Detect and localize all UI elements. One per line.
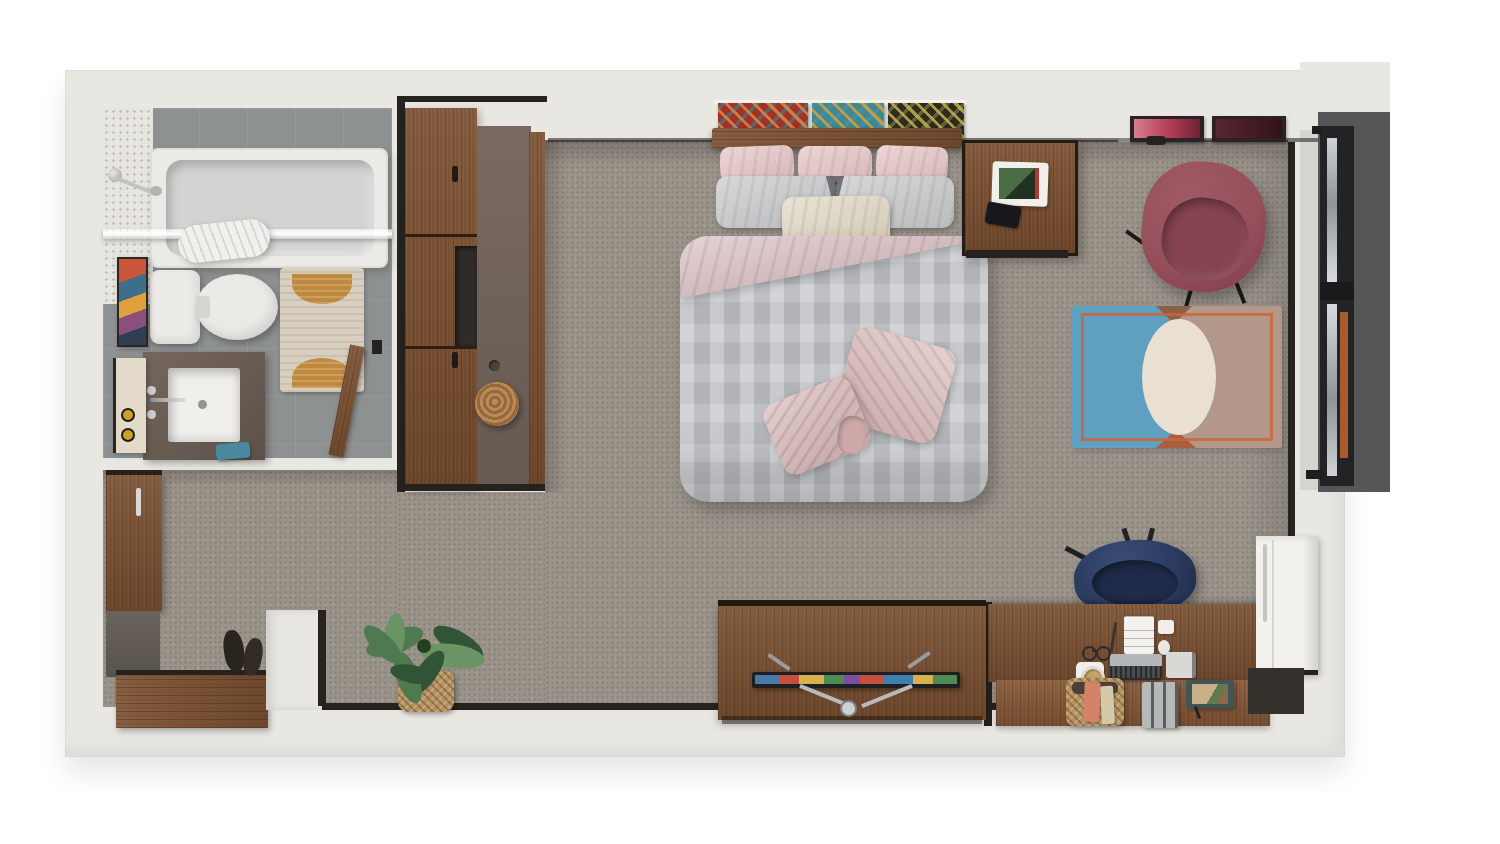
desk-keyboard-keys xyxy=(1112,666,1160,678)
sink-drain xyxy=(198,400,207,409)
tray-decor-book xyxy=(999,168,1039,199)
reading-glasses-lens-2 xyxy=(1096,646,1111,661)
file-organizer xyxy=(1142,682,1178,728)
basket-book-cream xyxy=(1100,686,1115,725)
tv-screen-colors xyxy=(755,675,957,684)
window-curtain-orange xyxy=(1340,312,1348,458)
blue-hand-towel xyxy=(215,442,250,461)
desk-corner-shadow xyxy=(1248,668,1304,714)
shelf-bottle-1 xyxy=(121,408,135,422)
partition-edge-trim xyxy=(318,610,326,706)
task-chair-seat xyxy=(1092,560,1178,606)
monstera-plant xyxy=(352,580,492,716)
wall-vent xyxy=(1146,136,1166,145)
entry-bench xyxy=(116,675,268,728)
window-glass-upper xyxy=(1327,138,1337,282)
closet-counter-panel xyxy=(477,126,531,484)
desk-tablet xyxy=(1166,652,1196,678)
wardrobe-open-shelf xyxy=(455,246,477,346)
bathroom-wall-art xyxy=(117,257,148,347)
shelf-bottle-2 xyxy=(121,428,135,442)
toilet-tank xyxy=(150,270,200,344)
cabinet-handle xyxy=(1263,544,1267,622)
window-inner-wall-sliver xyxy=(1300,130,1318,490)
wardrobe-seam-1 xyxy=(405,234,477,237)
partition-stub-wall xyxy=(266,610,322,710)
faucet-handle-top xyxy=(147,386,156,395)
window-sill-bottom xyxy=(1306,470,1324,479)
reading-glasses-bridge xyxy=(1092,650,1098,652)
toilet-seat-hinge xyxy=(196,296,210,318)
area-rug xyxy=(1072,306,1282,448)
bed-headboard xyxy=(712,128,962,148)
desk-notepad xyxy=(1124,616,1154,654)
window-mullion xyxy=(1320,282,1354,300)
closet-top-trim xyxy=(397,96,547,102)
reading-glasses-lens-1 xyxy=(1082,646,1097,661)
framed-print-pink-art xyxy=(1134,119,1200,138)
rug-orange-border xyxy=(1081,313,1273,441)
window-glass-lower xyxy=(1327,304,1337,476)
window-frame xyxy=(1320,126,1354,486)
round-wood-stool xyxy=(475,382,519,426)
sink-faucet xyxy=(150,398,186,402)
cabinet-door-seam xyxy=(1272,540,1274,670)
closet-bottom-trim xyxy=(405,484,545,491)
photo-tray-picture xyxy=(1192,684,1228,704)
bathroom-door-hinge xyxy=(372,340,382,354)
entry-cabinet xyxy=(106,475,162,611)
floor-plan-stage xyxy=(0,0,1500,844)
window-sill-top xyxy=(1312,126,1322,134)
faucet-handle-bottom xyxy=(147,410,156,419)
wall-switch xyxy=(1118,138,1130,143)
wardrobe-seam-2 xyxy=(405,346,477,349)
duvet-pink-fold xyxy=(680,236,988,299)
nightstand-base xyxy=(966,250,1068,258)
shower-head xyxy=(150,186,162,196)
framed-print-maroon-art xyxy=(1216,119,1282,138)
closet-back-trim xyxy=(397,96,405,492)
console-bottom-shadow xyxy=(722,716,982,724)
wardrobe-handle-1 xyxy=(452,166,458,182)
desk-gadget xyxy=(1158,620,1174,634)
closet-knob xyxy=(489,360,500,371)
wardrobe-handle-2 xyxy=(452,352,458,368)
basket-book-coral xyxy=(1083,682,1100,723)
tv-stand-knob xyxy=(840,700,857,717)
shadow-left-of-room xyxy=(545,140,567,492)
closet-side-sliver xyxy=(529,132,545,484)
entry-floor-shadow xyxy=(106,611,160,677)
entry-cabinet-handle xyxy=(136,488,141,516)
